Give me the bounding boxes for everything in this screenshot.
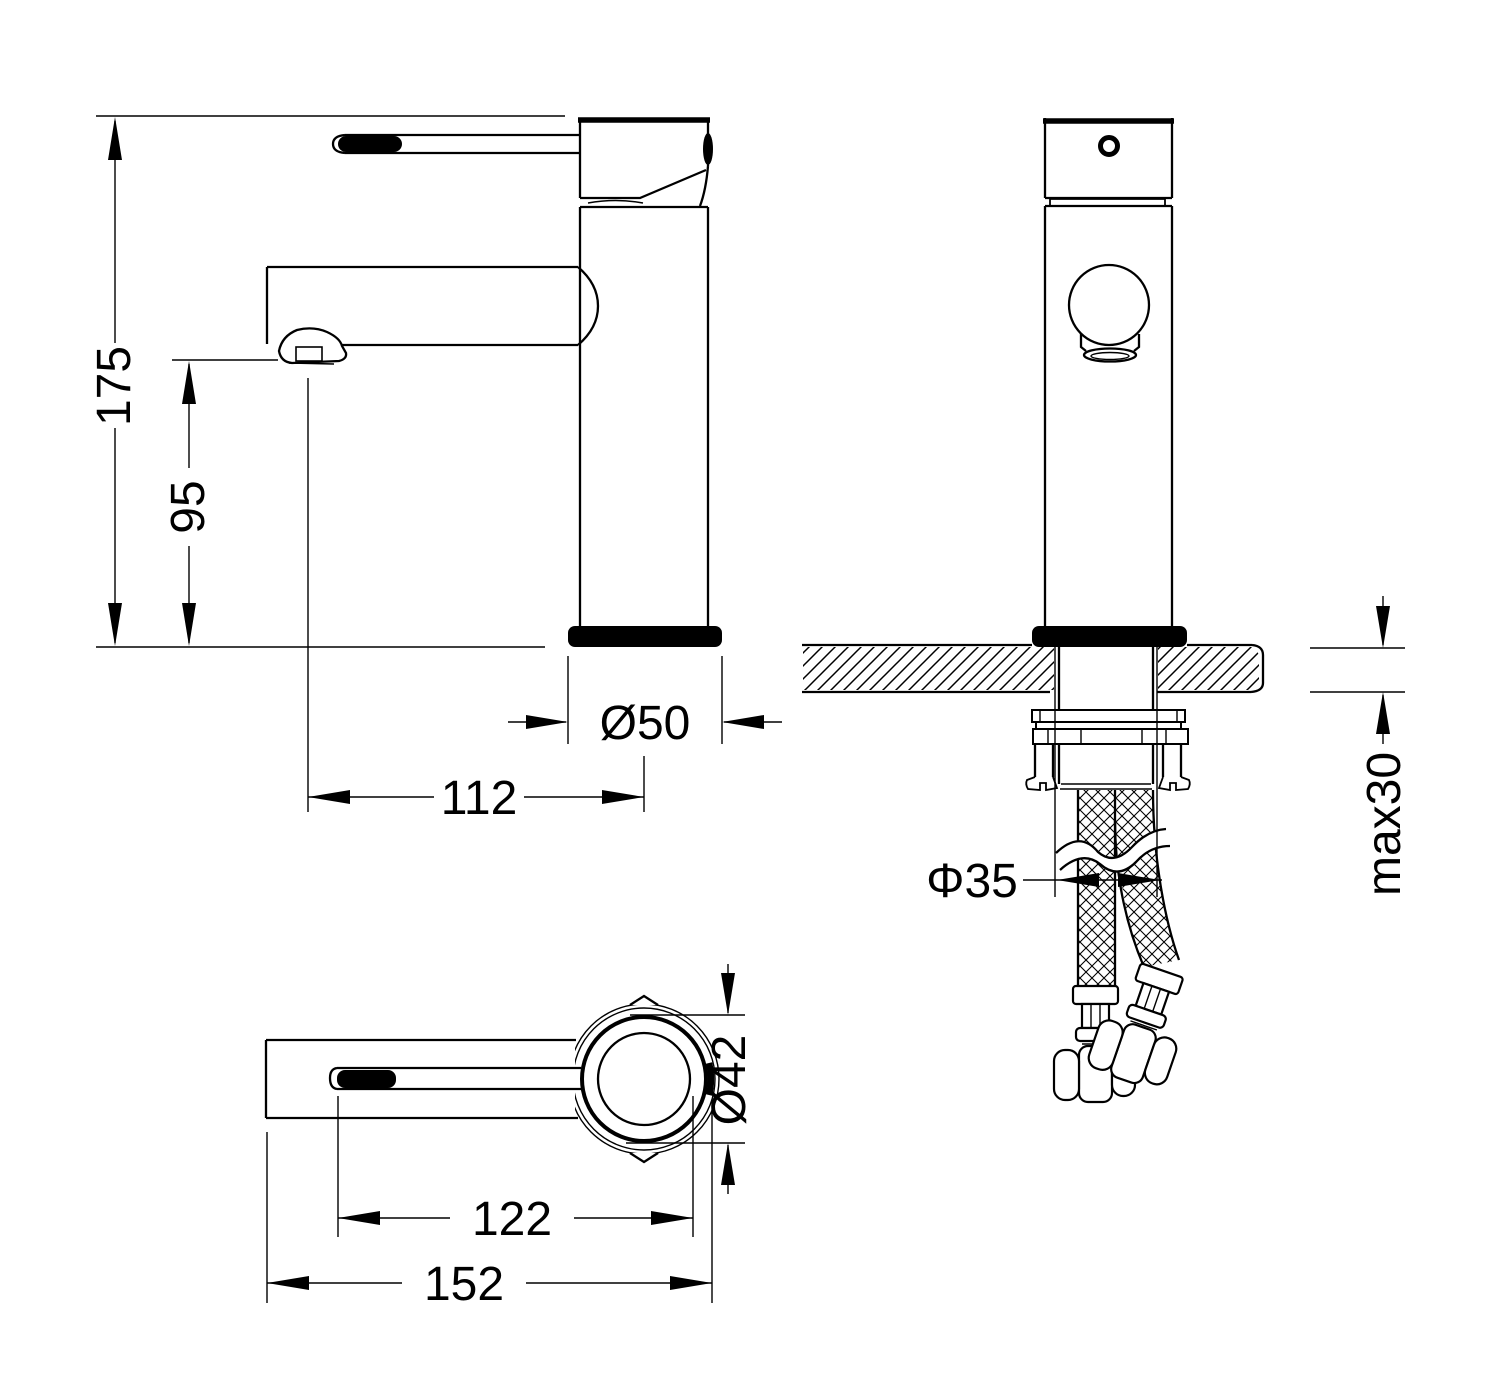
- dim-base-diameter-label: Ø50: [600, 697, 691, 750]
- background: [0, 0, 1500, 1397]
- dim-overall-length-label: 152: [424, 1258, 504, 1311]
- mounting-nut: [1033, 729, 1188, 744]
- handle-lever-top: [330, 1068, 581, 1089]
- handle-grip-side: [338, 136, 402, 152]
- body-top-circle: [582, 1017, 706, 1141]
- hose-left-braid: [1078, 790, 1115, 986]
- counter-section: [802, 645, 1263, 692]
- dim-counter-thickness-label: max30: [1358, 752, 1411, 896]
- handle-grip-top: [337, 1070, 396, 1088]
- faucet-technical-drawing: 175 95: [0, 0, 1500, 1397]
- counter-hatch-right: [1158, 647, 1259, 690]
- dim-spout-height-label: 95: [162, 480, 215, 533]
- dim-handle-length-label: 122: [472, 1193, 552, 1246]
- drawing-canvas: 175 95: [0, 0, 1500, 1397]
- counter-hatch-left: [803, 647, 1054, 690]
- dim-mount-hole-label: Φ35: [926, 855, 1018, 908]
- dim-total-height-label: 175: [88, 346, 141, 426]
- base-flange-front: [1032, 626, 1187, 647]
- dim-spout-reach-label: 112: [441, 772, 518, 825]
- dim-body-diameter-label: Ø42: [703, 1035, 756, 1126]
- handle-pivot-pin: [703, 133, 713, 165]
- base-flange-side: [568, 626, 722, 647]
